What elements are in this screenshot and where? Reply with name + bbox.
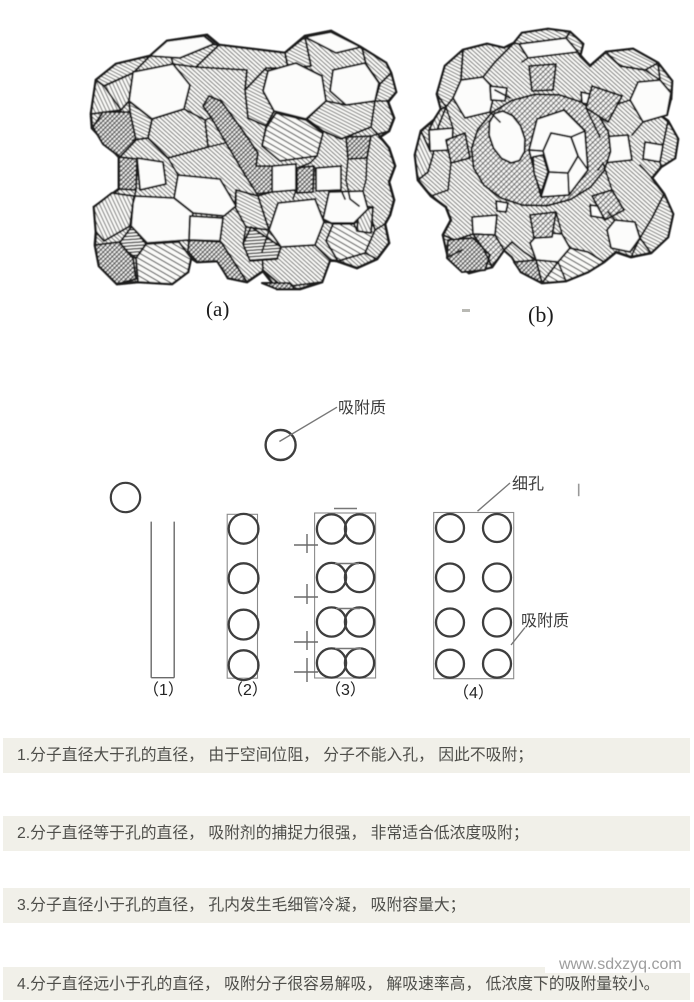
svg-text:细孔: 细孔 (512, 475, 544, 493)
svg-text:（3）: （3） (325, 681, 366, 699)
svg-text:（4）: （4） (453, 684, 494, 702)
svg-text:（2）: （2） (227, 681, 268, 699)
svg-text:吸附质: 吸附质 (338, 399, 386, 417)
svg-text:吸附质: 吸附质 (521, 612, 569, 630)
svg-text:（1）: （1） (143, 681, 184, 699)
